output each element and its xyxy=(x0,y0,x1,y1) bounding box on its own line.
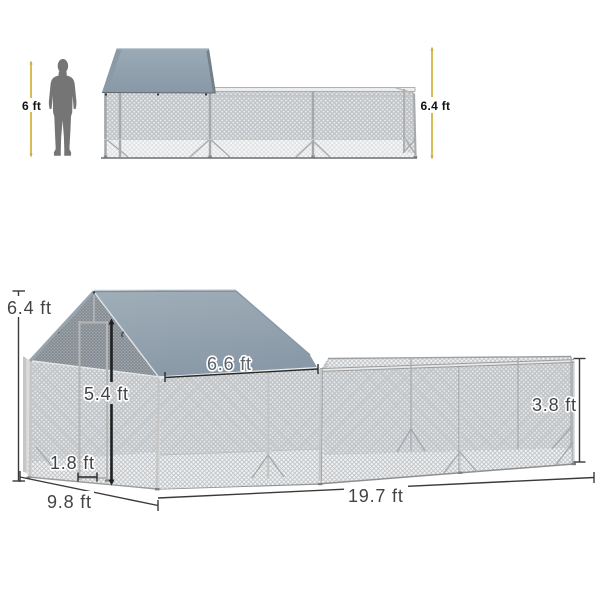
svg-text:3.8 ft: 3.8 ft xyxy=(532,395,577,415)
svg-text:6 ft: 6 ft xyxy=(22,99,41,113)
svg-text:6.4 ft: 6.4 ft xyxy=(421,99,451,113)
svg-text:6.4 ft: 6.4 ft xyxy=(7,298,52,318)
svg-text:19.7 ft: 19.7 ft xyxy=(348,486,404,506)
svg-text:1.8 ft: 1.8 ft xyxy=(50,453,95,473)
svg-text:9.8 ft: 9.8 ft xyxy=(47,492,92,512)
svg-text:6.6 ft: 6.6 ft xyxy=(207,354,252,374)
svg-text:5.4 ft: 5.4 ft xyxy=(84,384,129,404)
